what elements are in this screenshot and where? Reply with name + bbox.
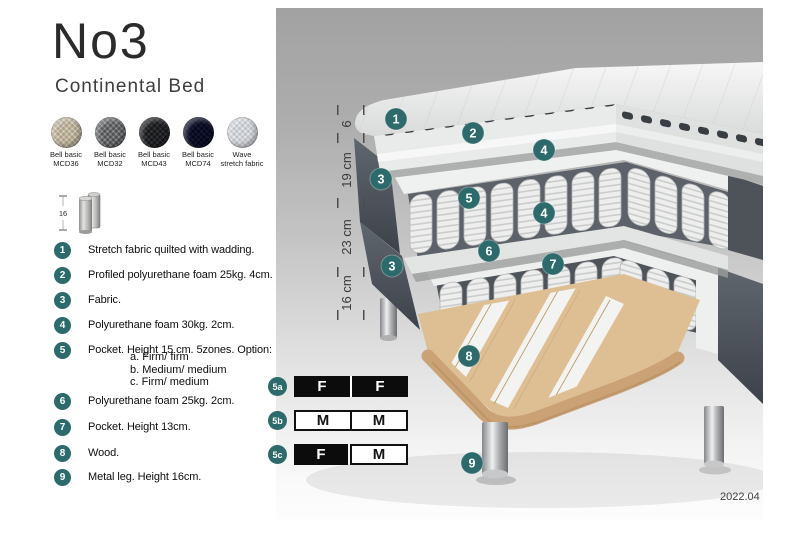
firmness-cells: M M (294, 410, 408, 431)
legend-item-4: 4 Polyurethane foam 30kg. 2cm. (54, 316, 234, 334)
firmness-row-5a: 5a F F (268, 376, 408, 397)
fabric-swatch-label: Bell basicMCD36 (50, 151, 82, 168)
fabric-swatch: Wavestretch fabric (220, 117, 264, 168)
legend-text: Polyurethane foam 25kg. 2cm. (88, 395, 234, 407)
legend-number-badge: 7 (54, 419, 71, 436)
middle-right-fabric (728, 174, 763, 260)
callout-2: 2 (462, 122, 484, 144)
callout-4b: 4 (533, 202, 555, 224)
legend-number-badge: 3 (54, 292, 71, 309)
legend-number-badge: 8 (54, 445, 71, 462)
fabric-swatch-label: Bell basicMCD32 (94, 151, 126, 168)
legend-number-badge: 4 (54, 317, 71, 334)
callout-9: 9 (461, 452, 483, 474)
fabric-swatch: Bell basicMCD32 (88, 117, 132, 168)
fabric-swatch-label: Bell basicMCD74 (182, 151, 214, 168)
legend-text: Fabric. (88, 294, 121, 306)
firmness-row-5c: 5c F M (268, 444, 408, 465)
firmness-badge: 5a (268, 377, 287, 396)
firmness-cells: F F (294, 376, 408, 397)
dim-label-6: 6 (339, 120, 354, 127)
legend-item-6: 6 Polyurethane foam 25kg. 2cm. (54, 392, 234, 410)
legend-item-8: 8 Wood. (54, 444, 119, 462)
firmness-cell: M (296, 412, 350, 429)
product-title: No3 (52, 16, 150, 66)
fabric-swatch-icon (51, 117, 82, 148)
legend-number-badge: 5 (54, 342, 71, 359)
callout-8: 8 (458, 345, 480, 367)
firmness-badge: 5b (268, 411, 287, 430)
legend-number-badge: 2 (54, 267, 71, 284)
version-label: 2022.04 (720, 491, 760, 503)
legend-text: Wood. (88, 447, 119, 459)
fabric-swatch-label: Bell basicMCD43 (138, 151, 170, 168)
leg-cylinder-icon (79, 193, 100, 235)
svg-text:9: 9 (469, 457, 476, 471)
svg-text:5: 5 (466, 192, 473, 206)
firmness-cell: M (352, 412, 406, 429)
fabric-swatch-icon (227, 117, 258, 148)
fabric-swatch: Bell basicMCD74 (176, 117, 220, 168)
callout-3b: 3 (381, 255, 403, 277)
fabric-swatch: Bell basicMCD43 (132, 117, 176, 168)
product-subtitle: Continental Bed (55, 76, 205, 98)
firmness-cell: F (294, 444, 348, 465)
svg-text:3: 3 (389, 260, 396, 274)
fabric-swatches: Bell basicMCD36 Bell basicMCD32 Bell bas… (44, 117, 264, 168)
legend-text: Polyurethane foam 30kg. 2cm. (88, 319, 234, 331)
legend-text: Pocket. Height 13cm. (88, 421, 191, 433)
callout-7: 7 (542, 253, 564, 275)
svg-text:6: 6 (486, 245, 493, 259)
svg-text:3: 3 (378, 173, 385, 187)
firmness-cell: F (294, 376, 350, 397)
lower-right-fabric (718, 268, 763, 404)
legend-item-9: 9 Metal leg. Height 16cm. (54, 468, 201, 486)
firmness-row-5b: 5b M M (268, 410, 408, 431)
callout-6: 6 (478, 240, 500, 262)
legend-item-7: 7 Pocket. Height 13cm. (54, 418, 191, 436)
legend-item-2: 2 Profiled polyurethane foam 25kg. 4cm. (54, 266, 273, 284)
callout-1: 1 (385, 108, 407, 130)
firmness-cells: F M (294, 444, 408, 465)
fabric-swatch: Bell basicMCD36 (44, 117, 88, 168)
callout-3a: 3 (370, 168, 392, 190)
callout-4a: 4 (533, 139, 555, 161)
dim-label-16: 16 cm (339, 275, 354, 310)
fabric-swatch-label: Wavestretch fabric (221, 151, 264, 168)
legend-text: Metal leg. Height 16cm. (88, 471, 201, 483)
legend-item-1: 1 Stretch fabric quilted with wadding. (54, 241, 254, 259)
leg-height-value: 16 (59, 209, 67, 218)
fabric-swatch-icon (183, 117, 214, 148)
legend-number-badge: 9 (54, 469, 71, 486)
legend-number-badge: 6 (54, 393, 71, 410)
legend-text: Profiled polyurethane foam 25kg. 4cm. (88, 269, 273, 281)
legend-item-3: 3 Fabric. (54, 291, 121, 309)
firmness-cell: M (350, 444, 408, 465)
fabric-swatch-icon (139, 117, 170, 148)
firmness-badge: 5c (268, 445, 287, 464)
leg-size-thumbnail: 16 (52, 188, 114, 243)
svg-text:7: 7 (550, 258, 557, 272)
firmness-cell: F (352, 376, 408, 397)
callout-5: 5 (458, 187, 480, 209)
legend-text: Stretch fabric quilted with wadding. (88, 244, 254, 256)
legend-number-badge: 1 (54, 242, 71, 259)
svg-text:2: 2 (470, 127, 477, 141)
fabric-swatch-icon (95, 117, 126, 148)
svg-text:8: 8 (466, 350, 473, 364)
legend-item-5-options: a. Firm/ firm b. Medium/ medium c. Firm/… (130, 351, 227, 389)
svg-text:4: 4 (541, 207, 548, 221)
svg-text:4: 4 (541, 144, 548, 158)
dim-label-23: 23 cm (339, 219, 354, 254)
dim-label-19: 19 cm (339, 152, 354, 187)
product-sheet: No3 Continental Bed Bell basicMCD36 Bell… (0, 0, 800, 533)
svg-text:1: 1 (393, 113, 400, 127)
